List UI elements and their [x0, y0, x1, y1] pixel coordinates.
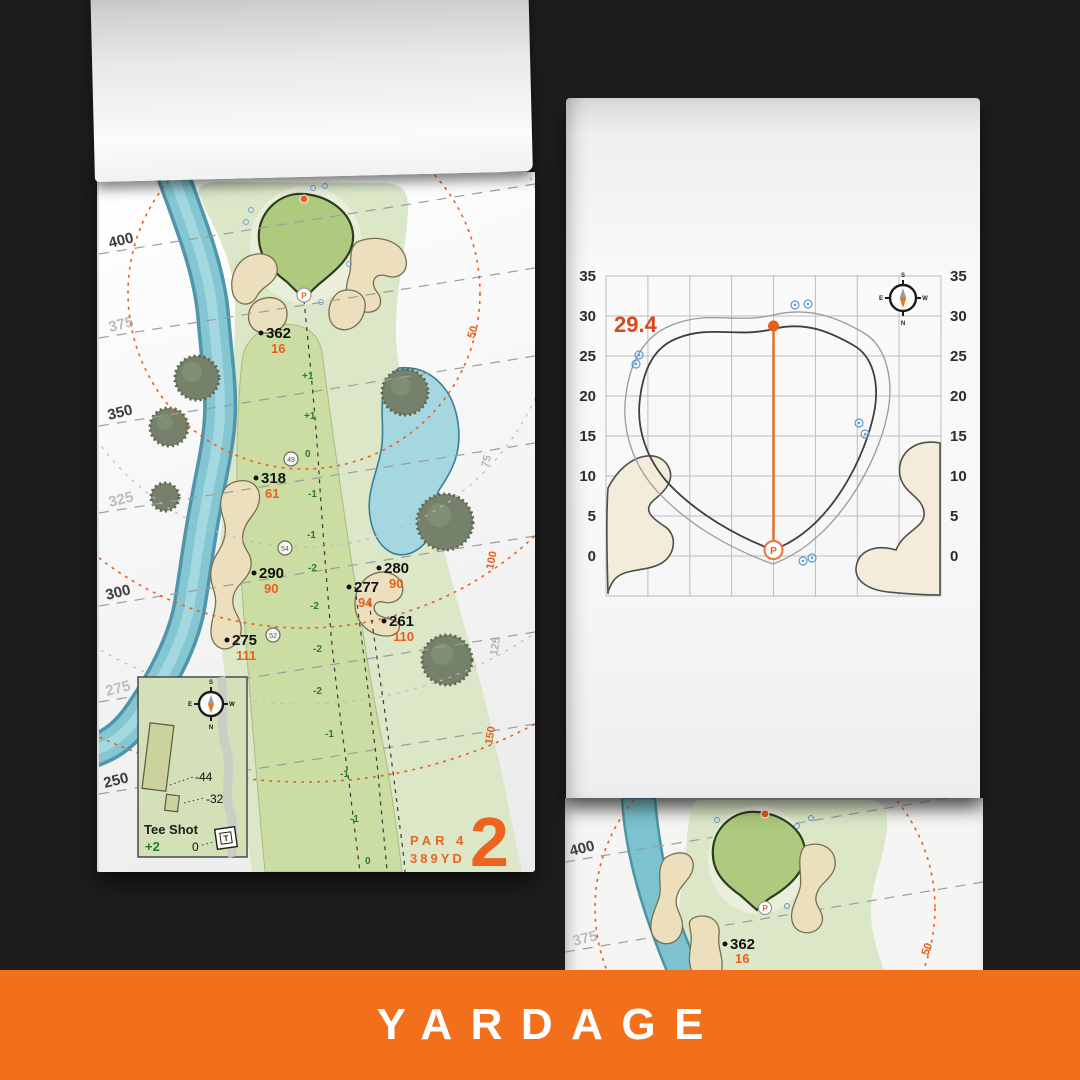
elevation: 0 [365, 856, 371, 867]
tee-shot-inset: -44 -32 Tee Shot +2 0 T S W [138, 677, 247, 857]
hole-map-page: 400 375 350 325 300 275 250 50 75 100 12 [97, 172, 535, 872]
waypoint-label: 52 [269, 633, 277, 640]
compass-icon: S W N E [879, 273, 928, 327]
front-number: 29.4 [614, 312, 658, 337]
elevation: -2 [313, 644, 322, 655]
carry-distance: 280 [384, 560, 409, 577]
yard-line-label: 275 [104, 677, 132, 700]
inset-title: Tee Shot [144, 822, 199, 837]
tick: 15 [579, 428, 596, 445]
measure-dot [761, 810, 769, 818]
arc-label: 50 [920, 941, 935, 957]
tee-elevation: +2 [145, 839, 160, 854]
measure-dot [768, 321, 779, 332]
carry-distance: 290 [259, 565, 284, 582]
offset-label: -32 [206, 792, 224, 806]
to-pin-distance: 111 [236, 648, 256, 663]
compass-left: E [188, 702, 192, 708]
yard-line-label: 400 [107, 229, 135, 252]
tick: 30 [579, 308, 596, 325]
to-pin-distance: 16 [735, 951, 749, 966]
curled-page [90, 0, 533, 182]
elevation: -2 [308, 563, 317, 574]
tick: 10 [579, 468, 596, 485]
carry-distance: 318 [261, 470, 286, 487]
hole-map: 400 375 350 325 300 275 250 50 75 100 12 [99, 172, 535, 872]
elevation: -1 [325, 729, 334, 740]
yardage-banner: YARDAGE [0, 970, 1080, 1080]
to-pin-distance: 90 [264, 581, 278, 596]
next-hole-page: 400 375 50 P [565, 798, 983, 974]
tick: 15 [950, 428, 967, 445]
axis-ticks-right: 35 30 25 20 15 10 5 0 [950, 268, 967, 565]
measure-dot [300, 195, 308, 203]
tick: 20 [950, 388, 967, 405]
compass-right: W [229, 702, 235, 708]
tick: 35 [579, 268, 596, 285]
tick: 25 [579, 348, 596, 365]
tick: 25 [950, 348, 967, 365]
carry-distance: 362 [266, 325, 291, 342]
arc-label: 125 [488, 636, 503, 656]
green-detail-chart: 35 30 25 20 15 10 5 0 35 30 25 20 15 10 … [566, 98, 980, 798]
arc-label: 50 [465, 325, 480, 340]
elevation: +1 [302, 371, 314, 382]
elevation: 0 [305, 449, 311, 460]
pin-marker: P [759, 902, 772, 915]
to-pin-distance: 90 [389, 576, 403, 591]
to-pin-distance: 110 [393, 629, 414, 644]
elevation: -1 [308, 489, 317, 500]
tick: 0 [588, 548, 596, 565]
pin-label: P [770, 546, 777, 557]
compass-bottom: N [901, 321, 905, 327]
carry-distance: 261 [389, 613, 414, 630]
sprinklers [632, 300, 869, 565]
compass-right: W [922, 296, 928, 302]
yard-line-label: 400 [568, 837, 596, 860]
compass-top: S [901, 273, 905, 279]
tick: 5 [950, 508, 958, 525]
elevation: -1 [307, 530, 316, 541]
banner-title: YARDAGE [358, 1000, 722, 1050]
tick: 0 [950, 548, 958, 565]
pin-label: P [762, 904, 768, 913]
pin-marker: P [297, 288, 311, 302]
elevation: +1 [304, 411, 316, 422]
elevation: -2 [310, 601, 319, 612]
hole-number: 2 [470, 803, 509, 872]
yardage-book-photo: 400 375 50 P [0, 0, 1080, 1080]
axis-ticks-left: 35 30 25 20 15 10 5 0 [579, 268, 596, 565]
waypoint-label: 49 [287, 457, 295, 464]
carry-distance: 275 [232, 632, 257, 649]
yard-line-label: 350 [106, 401, 134, 424]
next-hole-map: 400 375 50 P [565, 798, 983, 974]
compass-top: S [209, 680, 213, 686]
to-pin-distance: 16 [271, 341, 285, 356]
elevation: -1 [350, 814, 359, 825]
elevation: -2 [313, 686, 322, 697]
par-label: PAR 4 [410, 833, 467, 848]
tick: 5 [588, 508, 596, 525]
river [99, 178, 220, 752]
yard-line-label: 300 [104, 581, 132, 604]
arc-label: 100 [484, 550, 500, 570]
waypoint-label: 54 [281, 546, 289, 553]
compass-left: E [879, 296, 883, 302]
tick: 10 [950, 468, 967, 485]
compass-bottom: N [209, 725, 213, 731]
pin-label: P [301, 291, 307, 301]
to-pin-distance: 94 [358, 595, 373, 610]
yard-line-label: 325 [107, 488, 135, 511]
yard-line-label: 250 [102, 769, 130, 792]
tick: 20 [579, 388, 596, 405]
arc-label: 75 [479, 454, 494, 469]
carry-distance: 277 [354, 579, 379, 596]
yardage-label: 389YD [410, 851, 465, 866]
to-pin-distance: 61 [265, 486, 279, 501]
tick: 35 [950, 268, 967, 285]
yard-line-label: 375 [571, 927, 599, 950]
tee-distance: 0 [192, 840, 199, 854]
offset-label: -44 [195, 770, 213, 784]
green-detail-page: 35 30 25 20 15 10 5 0 35 30 25 20 15 10 … [566, 98, 980, 798]
tee-marker-icon: T [215, 827, 238, 850]
tick: 30 [950, 308, 967, 325]
elevation: -1 [340, 769, 349, 780]
